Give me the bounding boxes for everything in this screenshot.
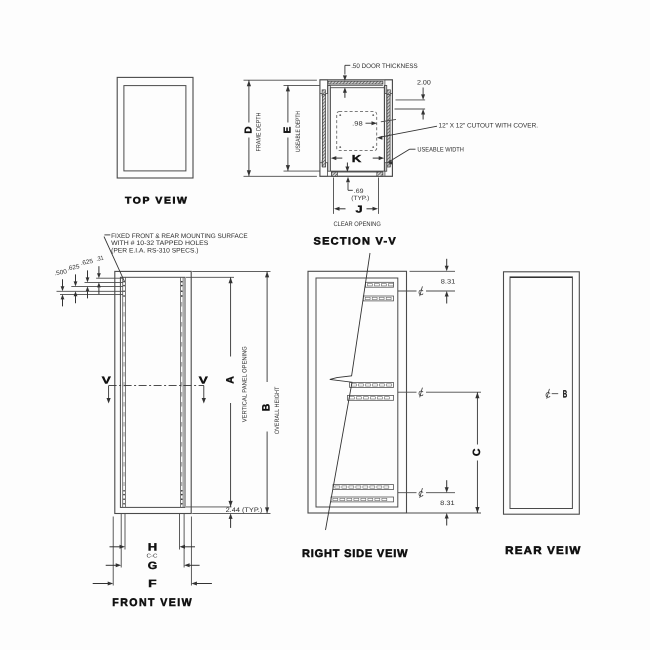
svg-text:8.31: 8.31 <box>440 500 455 507</box>
svg-text:C: C <box>471 448 483 456</box>
svg-text:2.00: 2.00 <box>417 80 431 87</box>
svg-text:12″ X 12″ CUTOUT WITH COVER.: 12″ X 12″ CUTOUT WITH COVER. <box>439 123 539 130</box>
svg-text:D: D <box>244 126 255 133</box>
svg-text:J: J <box>356 204 363 215</box>
svg-text:USEABLE DEPTH: USEABLE DEPTH <box>295 111 302 152</box>
svg-text:CLEAR OPENING: CLEAR OPENING <box>334 221 381 228</box>
svg-text:FRAME DEPTH: FRAME DEPTH <box>256 112 263 151</box>
svg-text:E: E <box>283 126 294 133</box>
svg-text:8.31: 8.31 <box>441 279 456 286</box>
svg-text:C-C: C-C <box>147 553 158 559</box>
svg-text:FRONT VEIW: FRONT VEIW <box>112 597 193 609</box>
svg-text:(TYP.): (TYP.) <box>351 195 369 202</box>
svg-text:TOP VEIW: TOP VEIW <box>125 195 189 206</box>
svg-text:K: K <box>352 154 363 165</box>
svg-text:.50 DOOR THICKNESS: .50 DOOR THICKNESS <box>351 63 418 70</box>
svg-text:B: B <box>261 403 273 411</box>
svg-text:H: H <box>148 542 158 554</box>
svg-text:2.44 (TYP.): 2.44 (TYP.) <box>226 507 263 514</box>
svg-text:VERTICAL PANEL OPENING: VERTICAL PANEL OPENING <box>241 346 248 422</box>
svg-text:V: V <box>102 375 111 386</box>
svg-text:.69: .69 <box>354 188 364 195</box>
svg-text:OVERALL HEIGHT: OVERALL HEIGHT <box>274 387 281 435</box>
svg-text:REAR VEIW: REAR VEIW <box>505 545 581 557</box>
svg-text:G: G <box>148 560 158 572</box>
svg-text:RIGHT SIDE VEIW: RIGHT SIDE VEIW <box>302 548 408 560</box>
svg-text:V: V <box>199 375 208 386</box>
svg-text:.98: .98 <box>352 121 363 128</box>
svg-text:USEABLE WIDTH: USEABLE WIDTH <box>417 147 464 154</box>
svg-text:A: A <box>225 376 237 384</box>
svg-text:B: B <box>563 389 568 401</box>
svg-text:FIXED FRONT & REAR MOUNTING SU: FIXED FRONT & REAR MOUNTING SURFACE <box>111 233 248 240</box>
svg-text:(PER E.I.A. RS-310 SPECS.): (PER E.I.A. RS-310 SPECS.) <box>111 248 198 255</box>
svg-text:SECTION V-V: SECTION V-V <box>314 236 398 248</box>
svg-text:F: F <box>148 578 157 590</box>
svg-text:WITH # 10-32 TAPPED HOLES: WITH # 10-32 TAPPED HOLES <box>111 240 209 247</box>
